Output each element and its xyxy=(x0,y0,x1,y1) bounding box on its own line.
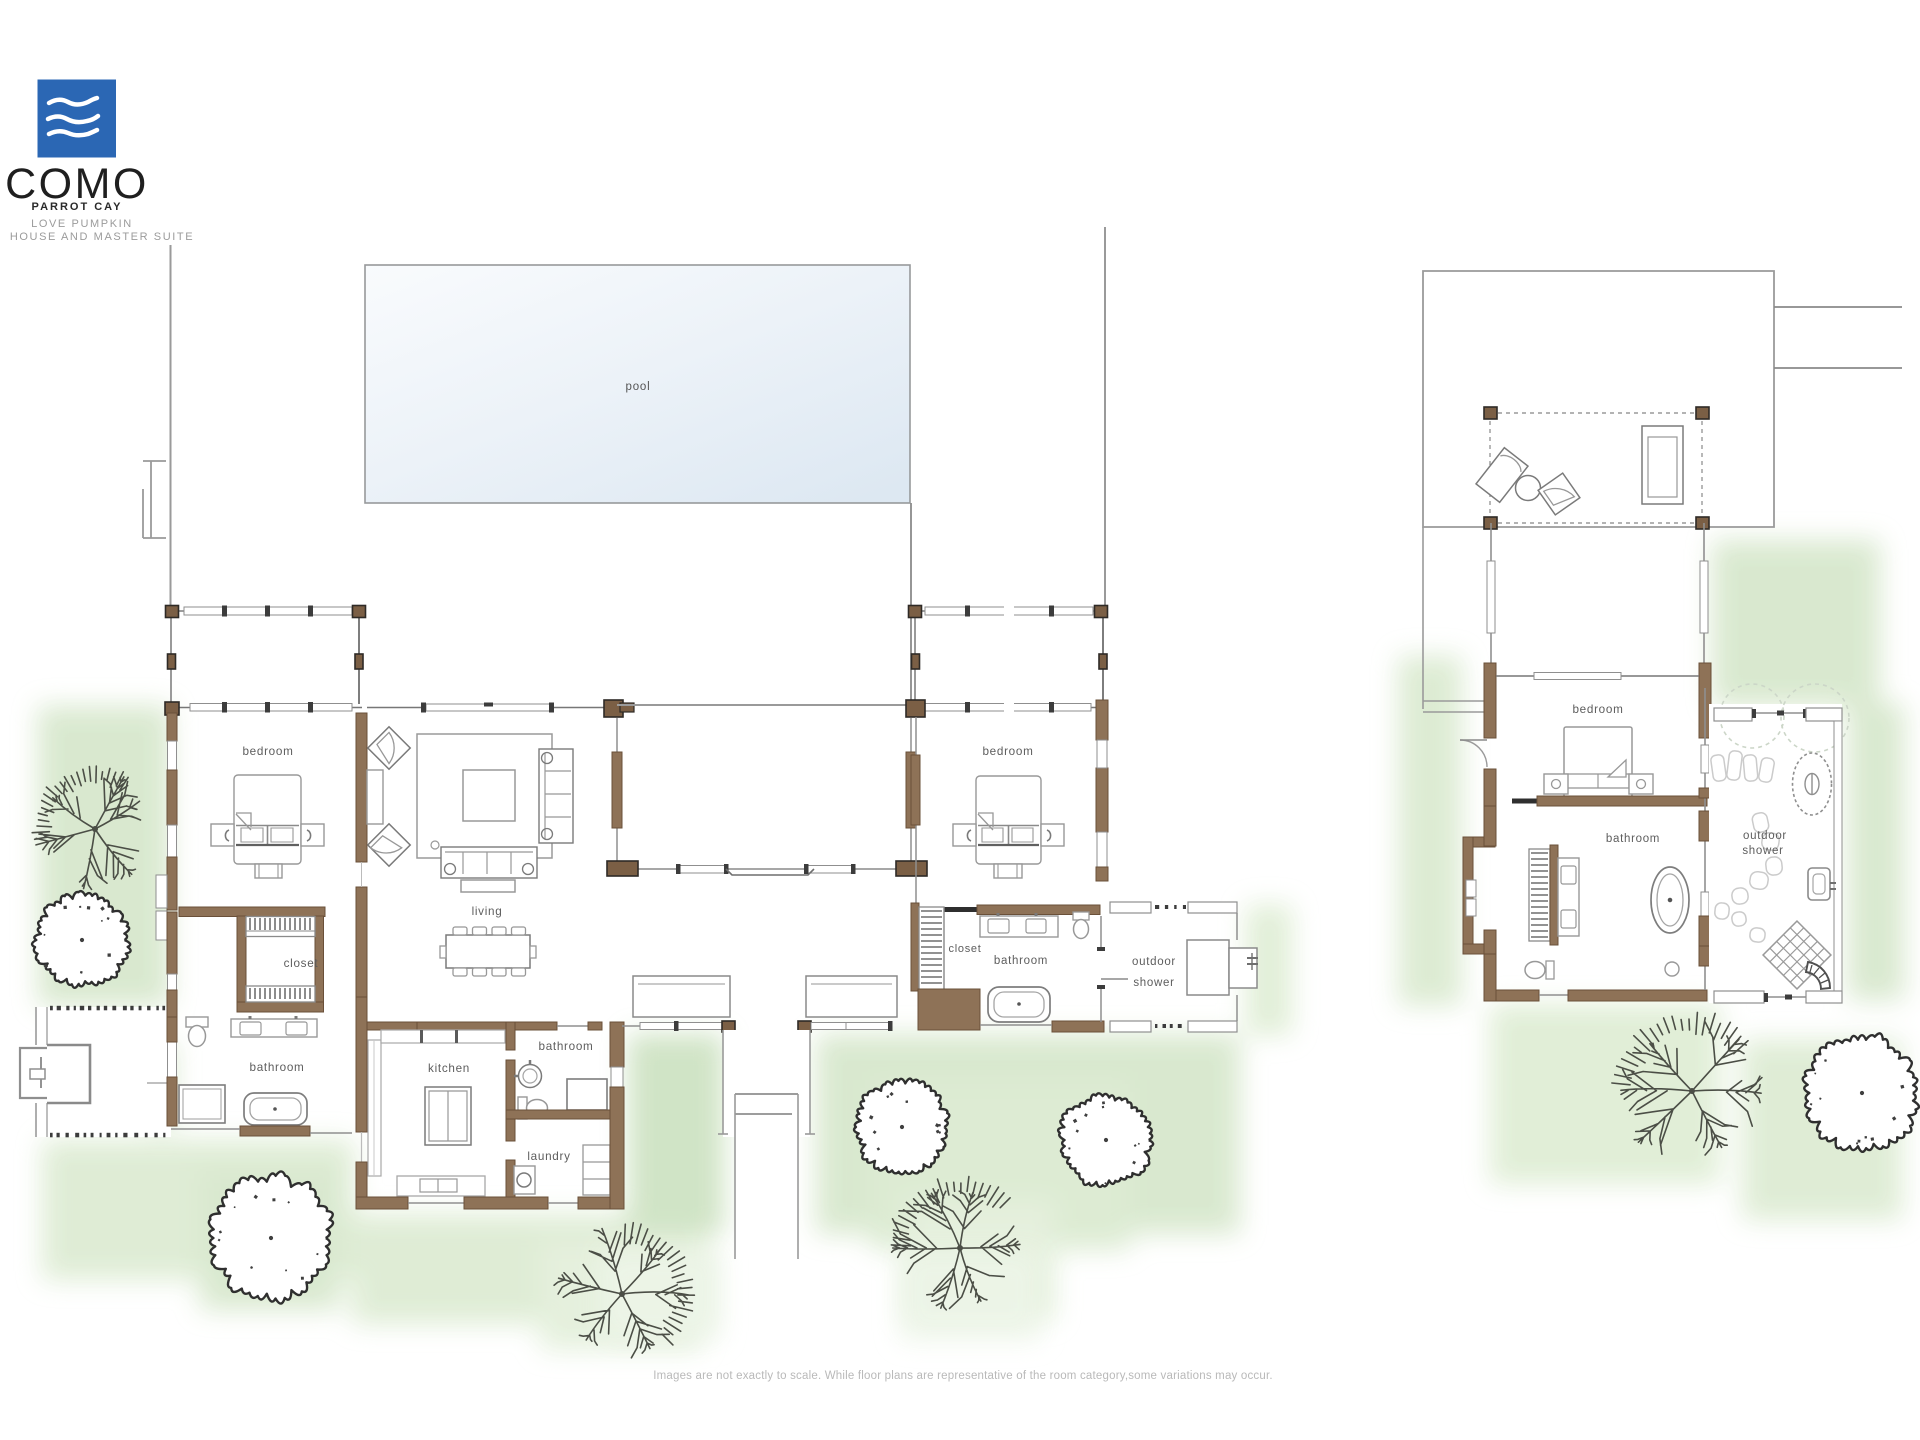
svg-text:living: living xyxy=(472,905,503,918)
svg-text:bathroom: bathroom xyxy=(1606,833,1660,845)
svg-text:bathroom: bathroom xyxy=(539,1040,594,1053)
svg-text:closet: closet xyxy=(949,943,982,955)
svg-text:laundry: laundry xyxy=(527,1150,570,1163)
svg-text:LOVE PUMPKIN: LOVE PUMPKIN xyxy=(31,218,133,230)
svg-text:outdoor: outdoor xyxy=(1743,830,1787,842)
svg-text:bathroom: bathroom xyxy=(250,1061,305,1074)
svg-text:shower: shower xyxy=(1742,845,1783,857)
svg-text:PARROT CAY: PARROT CAY xyxy=(32,201,123,213)
svg-text:HOUSE AND MASTER SUITE: HOUSE AND MASTER SUITE xyxy=(10,231,194,243)
svg-text:bathroom: bathroom xyxy=(994,955,1048,967)
svg-text:shower: shower xyxy=(1133,977,1174,989)
svg-text:closet: closet xyxy=(284,957,319,970)
svg-text:bedroom: bedroom xyxy=(242,745,293,758)
svg-text:outdoor: outdoor xyxy=(1132,956,1176,968)
svg-text:Images are not exactly to scal: Images are not exactly to scale. While f… xyxy=(653,1370,1273,1382)
svg-text:kitchen: kitchen xyxy=(428,1062,470,1075)
svg-text:bedroom: bedroom xyxy=(1572,703,1623,716)
svg-text:pool: pool xyxy=(626,381,651,393)
svg-text:bedroom: bedroom xyxy=(982,745,1033,758)
